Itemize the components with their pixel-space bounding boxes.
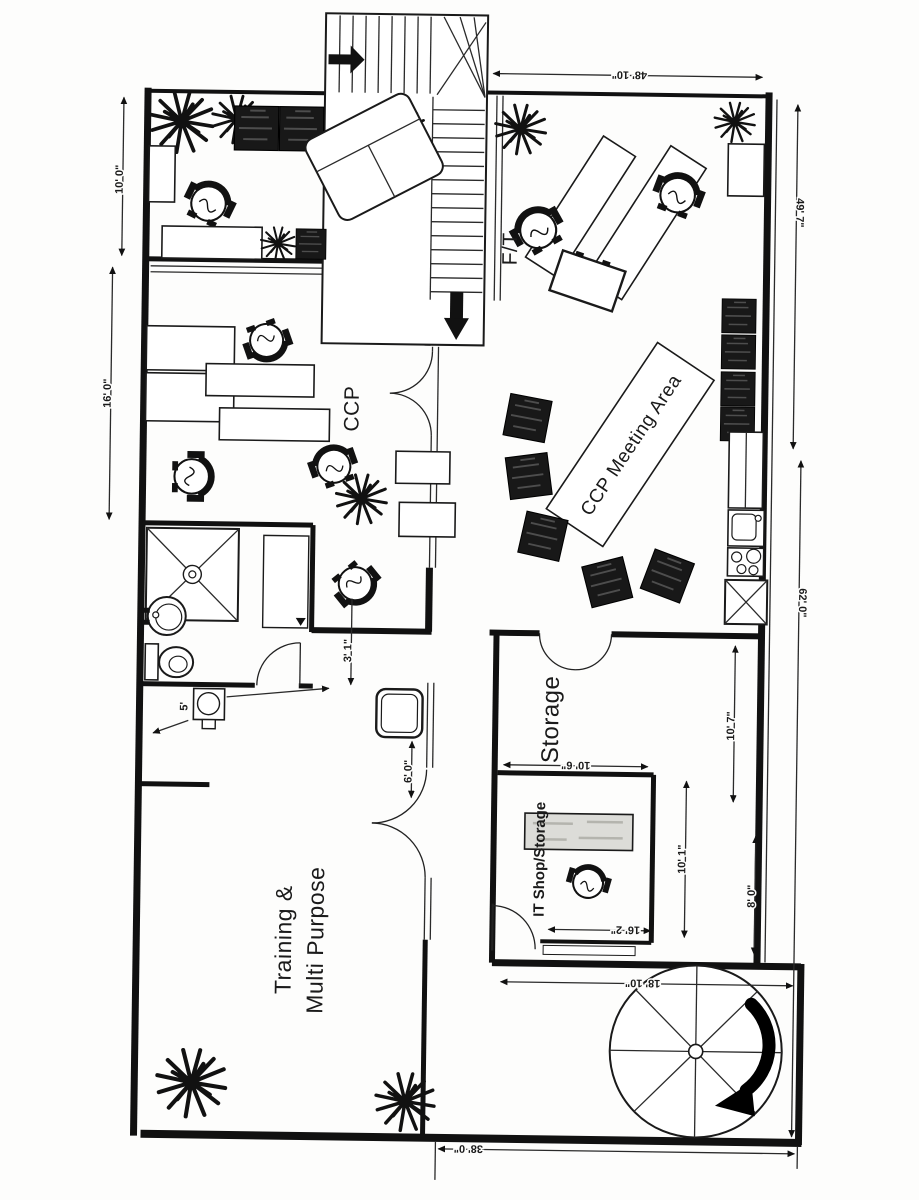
dim-top-right: 48' 10" xyxy=(612,68,648,80)
training-label-line2: Multi Purpose xyxy=(301,866,329,1013)
toilet xyxy=(145,644,193,681)
ft-room: F/T xyxy=(493,100,765,314)
armchair-icon xyxy=(238,315,296,367)
dim-door: 6' 0" xyxy=(402,760,414,783)
stacked-chair-icon xyxy=(234,106,279,151)
side-table xyxy=(162,226,262,259)
ft-label: F/T xyxy=(499,232,522,265)
stacked-chair-icon xyxy=(721,372,755,406)
plant-icon xyxy=(714,103,755,143)
armchair-icon xyxy=(325,554,386,614)
training-label-line1: Training & xyxy=(269,885,297,994)
dim-storage-height: 10' 7" xyxy=(725,711,737,740)
stove xyxy=(727,548,763,576)
meeting-area: CCP Meeting Area xyxy=(501,296,757,610)
armchair-icon xyxy=(177,175,240,232)
dim-corridor: 3' 1" xyxy=(342,639,354,662)
closet xyxy=(263,535,309,628)
table xyxy=(206,364,314,398)
stacked-chair-icon xyxy=(503,394,552,443)
ccp-double-door-arc xyxy=(390,351,433,394)
plant-icon xyxy=(376,1073,435,1130)
it-shop: IT Shop/Storage xyxy=(524,802,634,919)
ccp-label: CCP xyxy=(340,386,364,432)
office-chair-icon xyxy=(563,862,613,904)
stacked-chair-icon xyxy=(582,557,633,608)
dim-store-right-w: 8' 0" xyxy=(746,885,758,908)
table xyxy=(399,502,455,537)
dim-stair-room: 18' 10" xyxy=(625,976,661,988)
dim-right-mid: 62' 0" xyxy=(796,588,808,617)
plant-icon xyxy=(336,475,387,524)
sink-unit xyxy=(728,510,764,546)
cabinet xyxy=(728,144,765,196)
dim-bottom: 38' 0" xyxy=(454,1142,483,1154)
spiral-staircase xyxy=(609,964,783,1138)
scanned-floor-plan-page: F/T CCP CCP Meeting Area xyxy=(0,0,919,1200)
dim-utility: 5' xyxy=(178,701,190,710)
floor-plan-canvas: F/T CCP CCP Meeting Area xyxy=(0,0,919,1200)
stacked-chair-icon xyxy=(505,453,552,500)
water-heater xyxy=(193,688,225,728)
storage-double-door-arc xyxy=(539,633,575,669)
dim-it-width: 10' 6" xyxy=(561,759,590,771)
kitchenette xyxy=(725,432,770,625)
console-table xyxy=(149,146,176,202)
dim-right-upper: 49' 7" xyxy=(793,198,805,227)
plant-icon xyxy=(157,1050,226,1117)
training-room: Training & Multi Purpose xyxy=(157,864,438,1130)
appliance-box xyxy=(725,580,768,625)
plant-icon xyxy=(150,91,213,152)
stacked-chair-icon xyxy=(518,511,568,561)
plant-icon xyxy=(261,227,295,261)
stacked-chair-icon xyxy=(640,549,694,603)
table xyxy=(219,408,329,442)
stacked-chair-icon xyxy=(722,299,756,333)
dim-it-bottom: 16' 2" xyxy=(611,923,640,935)
table xyxy=(396,451,450,484)
meeting-table: CCP Meeting Area xyxy=(546,342,714,546)
dim-store-right-h: 10' 1" xyxy=(676,845,688,874)
it-shop-label: IT Shop/Storage xyxy=(531,802,550,917)
corridor-fixtures xyxy=(153,686,423,738)
training-double-door-arc xyxy=(372,769,427,824)
storage-label: Storage xyxy=(537,675,565,763)
corridor-sink xyxy=(376,689,423,738)
dim-left-upper: 10' 0" xyxy=(114,165,126,194)
stacked-chair-icon xyxy=(296,229,326,259)
bathroom xyxy=(141,528,309,682)
it-shop-door-arc xyxy=(492,906,536,950)
stacked-chair-icon xyxy=(721,335,755,369)
armchair-icon xyxy=(172,451,212,502)
dim-left-mid: 16' 0" xyxy=(102,378,114,407)
bathroom-door-arc xyxy=(257,642,301,686)
armchair-icon xyxy=(305,440,363,492)
